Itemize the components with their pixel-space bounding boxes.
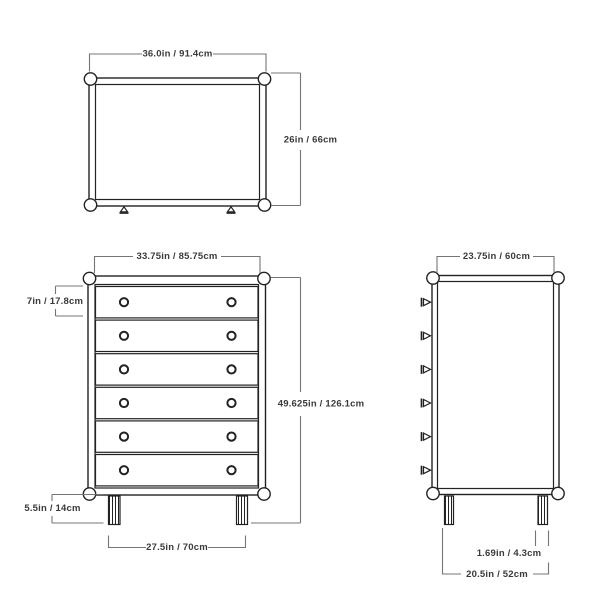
knob-profile	[422, 399, 431, 408]
drawer-knob	[120, 399, 128, 407]
drawer-knob	[120, 466, 128, 474]
drawer-knob	[120, 433, 128, 441]
corner-joint	[552, 272, 564, 284]
drawer-knob	[120, 365, 128, 373]
drawer-height-label: 7in / 17.8cm	[27, 296, 83, 307]
corner-joint	[427, 272, 439, 284]
drawer-knob	[227, 332, 235, 340]
top-view-outer-edge	[89, 78, 266, 206]
leg-height-label: 5.5in / 14cm	[24, 503, 80, 514]
leg	[237, 496, 248, 525]
top-view: 36.0in / 91.4cm 26in / 66cm	[84, 49, 337, 214]
dimension-drawing: 36.0in / 91.4cm 26in / 66cm	[0, 0, 611, 611]
knob-profile	[422, 331, 431, 340]
side-view-frame	[432, 276, 559, 495]
leg-width-label: 1.69in / 4.3cm	[477, 548, 542, 559]
knob-profile	[422, 466, 431, 475]
knob-profile	[227, 207, 236, 213]
corner-joint	[258, 272, 270, 284]
drawer-knob	[120, 298, 128, 306]
knob-profile	[120, 207, 129, 213]
front-view-inner-frame	[95, 285, 259, 489]
knob-profile	[422, 432, 431, 441]
corner-post	[258, 199, 270, 211]
drawer-knob	[227, 466, 235, 474]
side-view: 23.75in / 60cm 1.69in / 4.3cm 20.5in / 5…	[422, 251, 565, 580]
drawer-knob	[227, 399, 235, 407]
front-height-label: 49.625in / 126.1cm	[278, 399, 365, 410]
side-depth-label: 23.75in / 60cm	[463, 251, 530, 262]
corner-joint	[258, 488, 270, 500]
top-width-label: 36.0in / 91.4cm	[142, 49, 212, 60]
drawer-knob	[120, 332, 128, 340]
dimension-drawing-canvas: 36.0in / 91.4cm 26in / 66cm	[0, 0, 611, 611]
corner-joint	[552, 487, 564, 499]
front-width-label: 33.75in / 85.75cm	[136, 251, 217, 262]
front-view: 33.75in / 85.75cm 49.625in / 126.1cm 7in…	[24, 251, 364, 553]
corner-post	[258, 73, 270, 85]
top-depth-label: 26in / 66cm	[284, 135, 337, 146]
corner-post	[84, 199, 96, 211]
side-leg-span-label: 20.5in / 52cm	[466, 569, 528, 580]
top-view-inner-edge	[96, 85, 260, 200]
corner-post	[84, 73, 96, 85]
drawer-knob	[227, 433, 235, 441]
leg	[445, 496, 454, 525]
knob-profile	[422, 298, 431, 307]
front-leg-span-label: 27.5in / 70cm	[146, 542, 208, 553]
corner-joint	[427, 487, 439, 499]
drawer-knob	[227, 365, 235, 373]
leg	[109, 496, 121, 525]
leg	[538, 496, 548, 525]
corner-joint	[83, 272, 95, 284]
knob-profile	[422, 365, 431, 374]
side-view-inner-frame	[438, 282, 554, 489]
drawer-knob	[227, 298, 235, 306]
dimension-line-leg-width	[536, 531, 549, 547]
